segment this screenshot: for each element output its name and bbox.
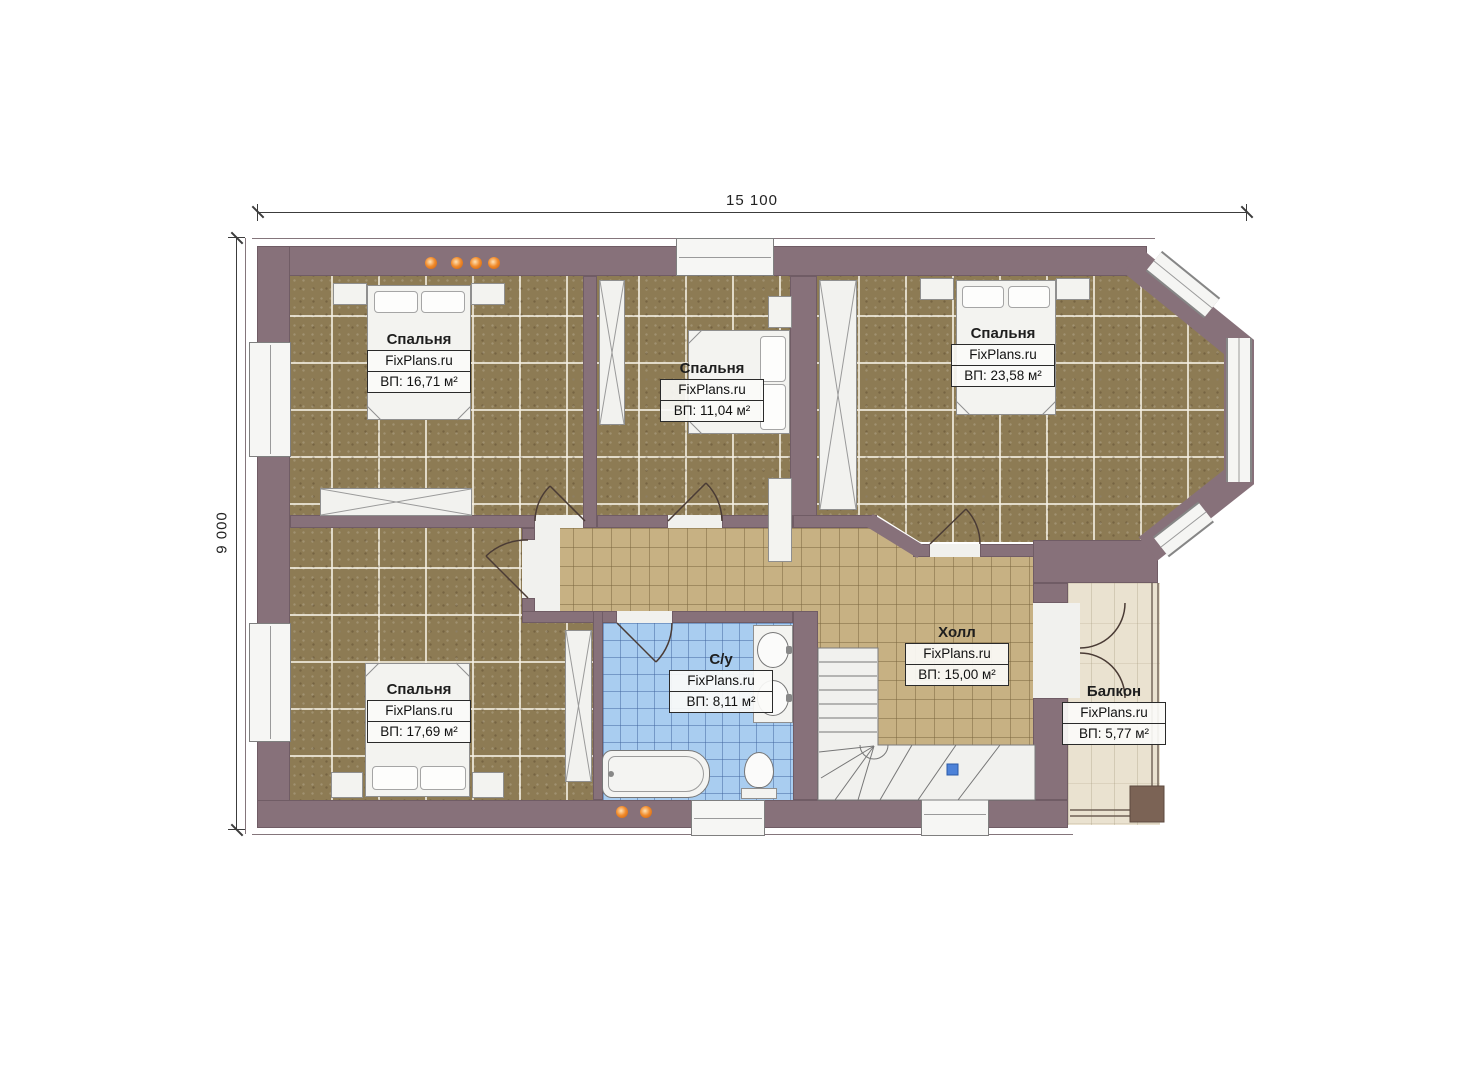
wall-corridor-west — [522, 528, 535, 540]
wall-bedroom3-bottom — [793, 515, 877, 528]
room-name: Спальня — [660, 360, 764, 377]
dimension-tick — [231, 824, 244, 837]
faucet — [786, 694, 792, 702]
light-dot — [451, 257, 463, 269]
window-top — [676, 238, 774, 276]
wall-bedroom3-bottom — [980, 544, 1035, 557]
light-dot — [425, 257, 437, 269]
room-area: ВП: 23,58 м² — [951, 365, 1055, 387]
room-area: ВП: 5,77 м² — [1062, 723, 1166, 745]
pillow — [421, 291, 465, 313]
light-dot — [616, 806, 628, 818]
room-label-bathroom: С/у FixPlans.ru ВП: 8,11 м² — [669, 651, 773, 713]
light-dot — [470, 257, 482, 269]
dimension-line-top — [258, 212, 1247, 213]
watermark: FixPlans.ru — [367, 700, 471, 722]
dimension-line-left — [236, 238, 237, 830]
dresser-bedroom-1 — [320, 488, 472, 516]
watermark: FixPlans.ru — [905, 643, 1009, 665]
room-name: Спальня — [951, 325, 1055, 342]
cabinet-bedroom-2 — [768, 478, 792, 562]
light-dot — [640, 806, 652, 818]
window-left-upper — [249, 342, 291, 457]
toilet-tank — [741, 788, 777, 799]
watermark: FixPlans.ru — [660, 379, 764, 401]
wall-bathroom-right — [793, 611, 818, 800]
toilet-bowl — [744, 752, 774, 788]
door-bedroom-1 — [535, 515, 583, 528]
watermark: FixPlans.ru — [669, 670, 773, 692]
room-label-bedroom-2: Спальня FixPlans.ru ВП: 11,04 м² — [660, 360, 764, 422]
wardrobe-bedroom-3 — [819, 280, 857, 510]
room-label-bedroom-4: Спальня FixPlans.ru ВП: 17,69 м² — [367, 681, 471, 743]
room-name: Балкон — [1062, 683, 1166, 700]
room-label-bedroom-1: Спальня FixPlans.ru ВП: 16,71 м² — [367, 331, 471, 393]
room-name: Спальня — [367, 681, 471, 698]
room-name: Спальня — [367, 331, 471, 348]
room-name: Холл — [905, 624, 1009, 641]
watermark: FixPlans.ru — [1062, 702, 1166, 724]
wall-bathroom-top — [672, 611, 793, 623]
door-bathroom — [617, 611, 672, 623]
room-label-bedroom-3: Спальня FixPlans.ru ВП: 23,58 м² — [951, 325, 1055, 387]
room-area: ВП: 15,00 м² — [905, 664, 1009, 686]
nightstand — [331, 772, 363, 798]
watermark: FixPlans.ru — [367, 350, 471, 372]
stair-marker — [947, 764, 958, 775]
wardrobe-bedroom-2 — [599, 280, 625, 425]
window-bottom-bathroom — [691, 800, 765, 836]
window-bottom-stairs — [921, 792, 989, 836]
pillow — [420, 766, 466, 790]
pillow — [962, 286, 1004, 308]
room-area: ВП: 11,04 м² — [660, 400, 764, 422]
nightstand — [768, 296, 792, 328]
light-dot — [488, 257, 500, 269]
pillow — [374, 291, 418, 313]
floor-plan-canvas: 15 100 9 000 — [0, 0, 1474, 1080]
wall-bedroom2-bedroom3 — [790, 276, 817, 528]
wall-balcony-left — [1033, 583, 1068, 603]
room-name: С/у — [669, 651, 773, 668]
wall-bedroom3-bottom — [913, 544, 930, 557]
nightstand — [1056, 278, 1090, 300]
dimension-height-label: 9 000 — [214, 483, 231, 583]
nightstand — [472, 772, 504, 798]
room-label-balcony: Балкон FixPlans.ru ВП: 5,77 м² — [1062, 683, 1166, 745]
nightstand — [471, 283, 505, 305]
room-area: ВП: 16,71 м² — [367, 371, 471, 393]
window-left-lower — [249, 623, 291, 742]
room-label-hall: Холл FixPlans.ru ВП: 15,00 м² — [905, 624, 1009, 686]
door-bedroom-2 — [668, 515, 722, 528]
bathtub — [602, 750, 710, 798]
wall-balcony-top — [1033, 540, 1158, 583]
pillow — [1008, 286, 1050, 308]
dimension-width-label: 15 100 — [702, 192, 802, 209]
wardrobe-bedroom-4 — [565, 630, 592, 782]
door-bedroom-4 — [522, 540, 535, 598]
wall-bedroom1-bedroom2 — [583, 276, 597, 528]
room-area: ВП: 8,11 м² — [669, 691, 773, 713]
door-bedroom-3 — [930, 544, 980, 557]
corridor-threshold — [535, 528, 560, 611]
nightstand — [333, 283, 367, 305]
watermark: FixPlans.ru — [951, 344, 1055, 366]
dimension-tick — [231, 232, 244, 245]
faucet — [608, 771, 614, 777]
nightstand — [920, 278, 954, 300]
room-area: ВП: 17,69 м² — [367, 721, 471, 743]
wall-outline — [245, 238, 246, 834]
faucet — [786, 646, 792, 654]
wall-bedroom1-bottom — [290, 515, 535, 528]
pillow — [372, 766, 418, 790]
wall-corridor-top — [597, 515, 668, 528]
